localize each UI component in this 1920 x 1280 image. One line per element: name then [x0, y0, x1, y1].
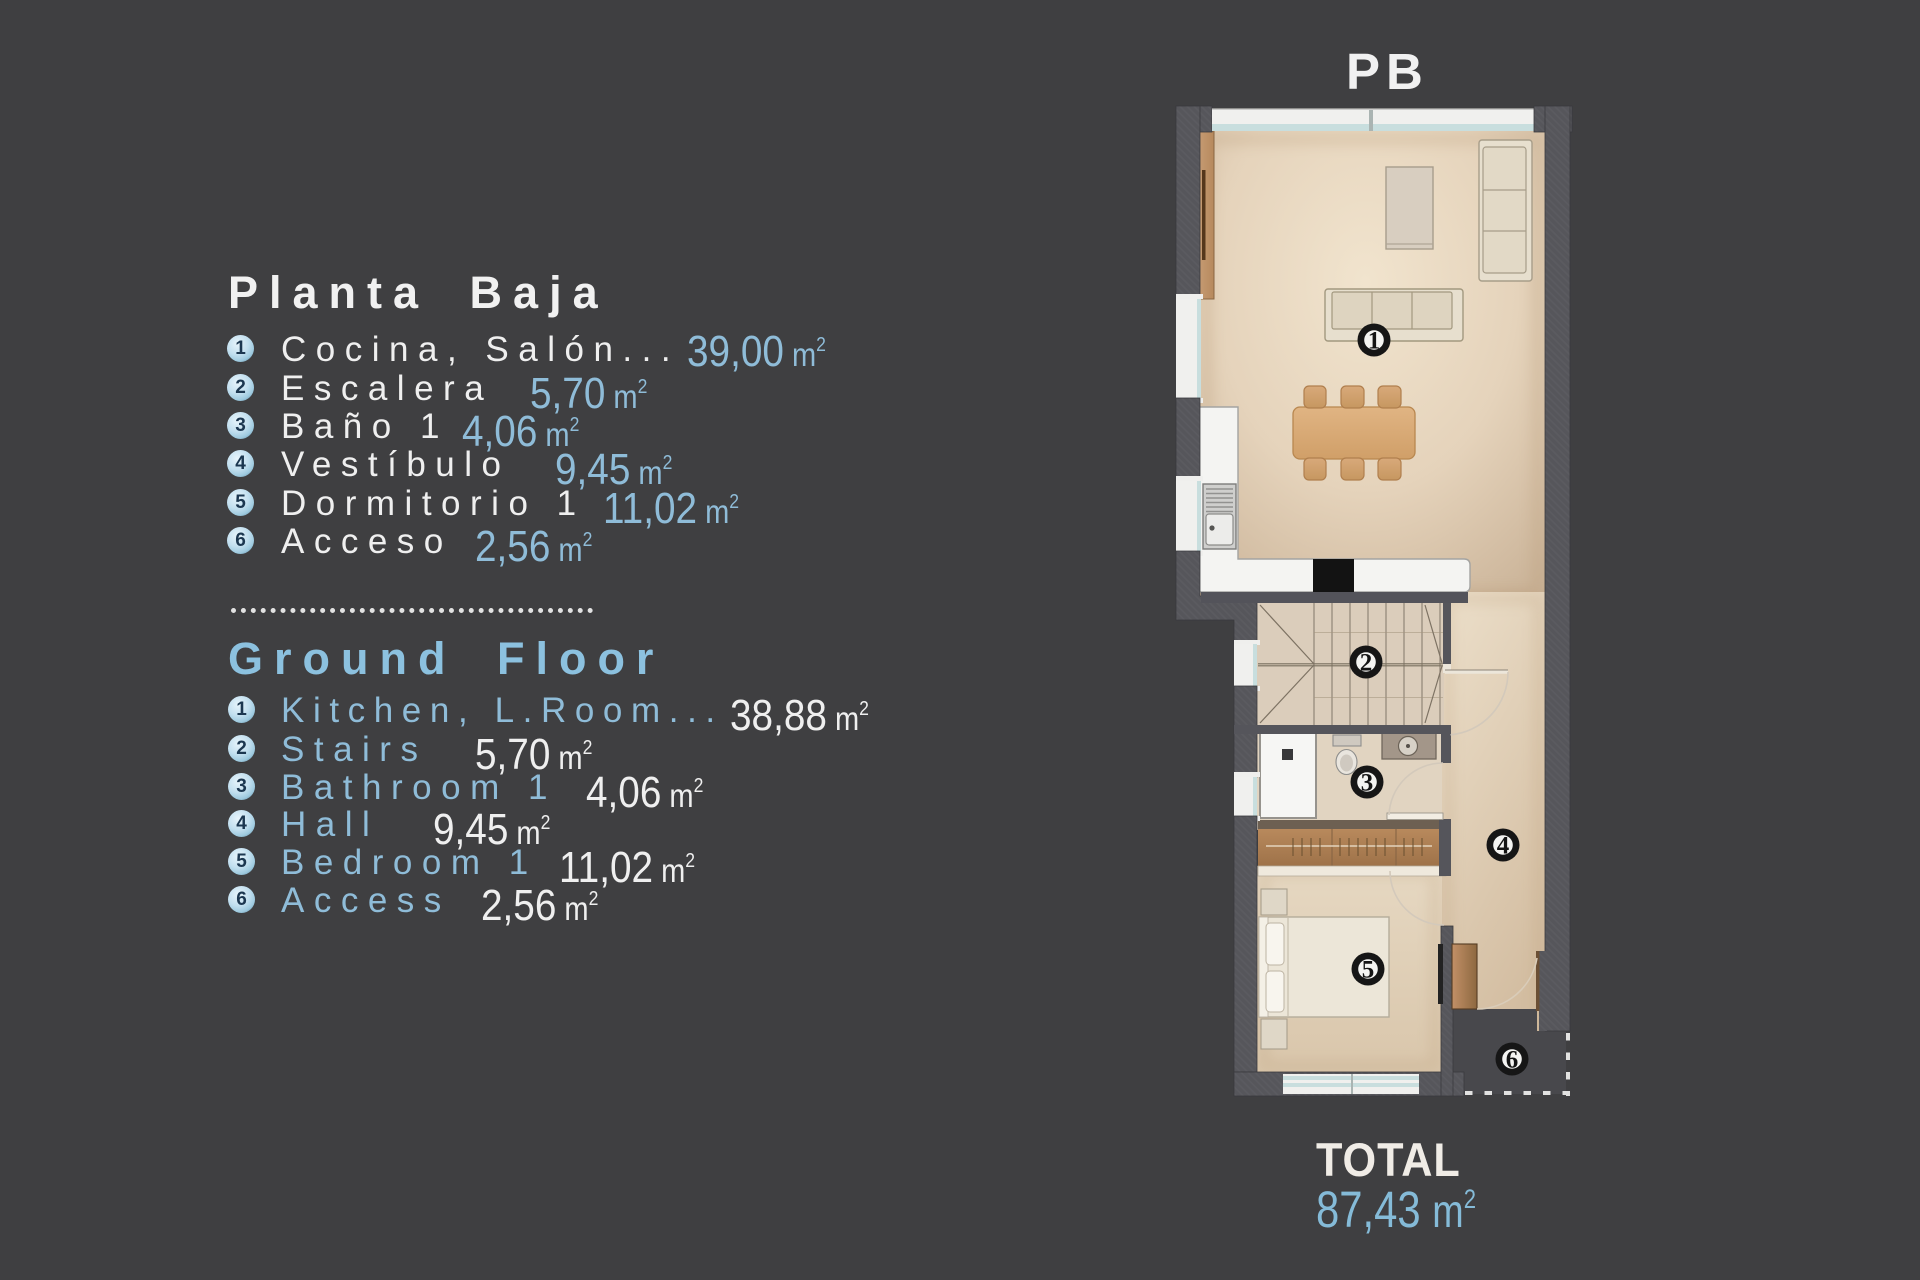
svg-text:6: 6	[1506, 1047, 1519, 1074]
svg-text:2: 2	[1360, 650, 1373, 677]
svg-text:3: 3	[1361, 770, 1374, 797]
svg-text:1: 1	[1368, 328, 1381, 355]
svg-text:4: 4	[1497, 833, 1510, 860]
svg-text:5: 5	[1362, 957, 1375, 984]
